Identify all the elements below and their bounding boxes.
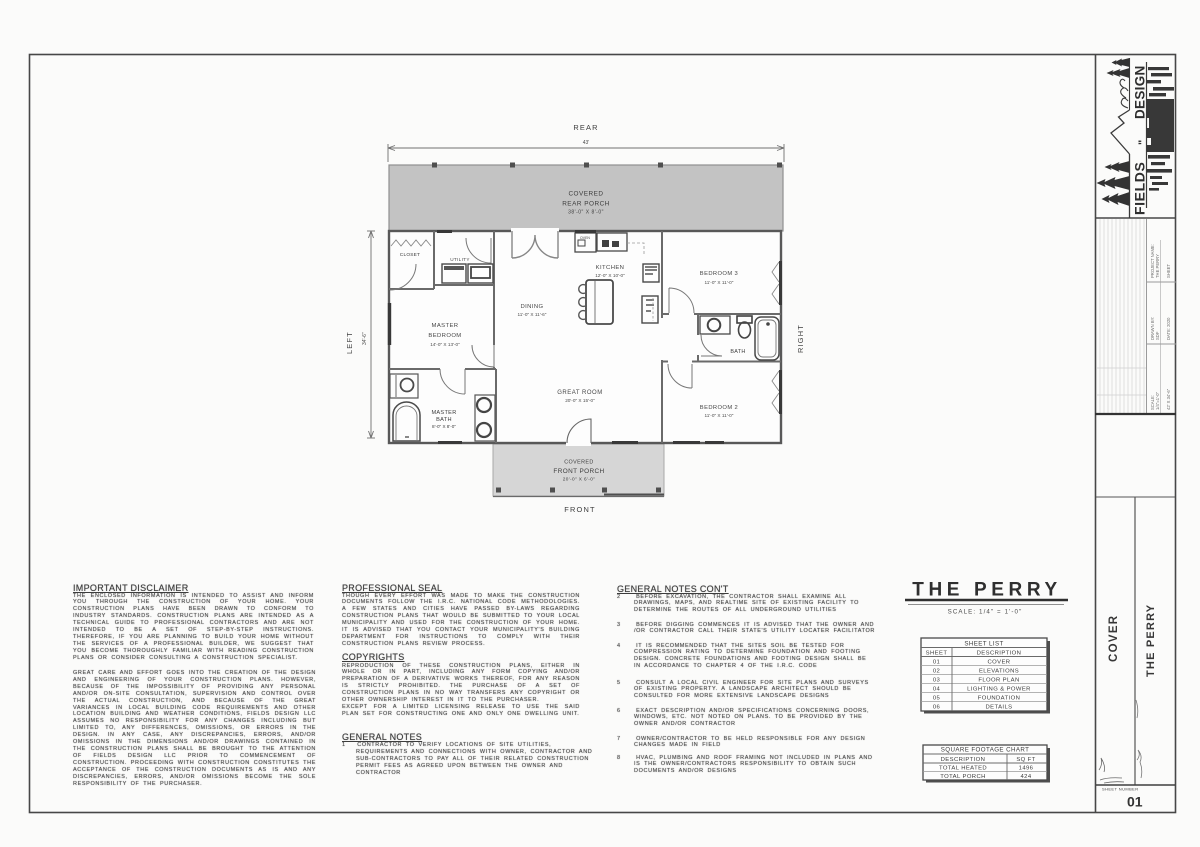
svg-text:BEDROOM 3: BEDROOM 3 (700, 271, 738, 277)
svg-text:02: 02 (933, 669, 940, 675)
svg-text:06: 06 (933, 705, 941, 711)
svg-text:SHEET: SHEET (1166, 264, 1171, 278)
svg-text:05: 05 (933, 696, 941, 702)
svg-text:REAR PORCH: REAR PORCH (562, 201, 610, 208)
svg-text:OVEN: OVEN (580, 236, 590, 240)
svg-text:UTILITY: UTILITY (450, 257, 470, 262)
svg-text:FOUNDATION: FOUNDATION (978, 696, 1021, 702)
svg-text:42' X 34'-6": 42' X 34'-6" (1166, 388, 1171, 410)
svg-text:FLOOR PLAN: FLOOR PLAN (978, 678, 1019, 684)
svg-text:1/4"=1'-0": 1/4"=1'-0" (1155, 391, 1160, 410)
svg-text:424: 424 (1020, 774, 1031, 780)
svg-text:MASTER: MASTER (432, 323, 459, 329)
svg-text:KITCHEN: KITCHEN (596, 265, 625, 271)
svg-text:SQ FT: SQ FT (1016, 757, 1035, 763)
svg-text:DESIGN: DESIGN (1133, 65, 1148, 119)
svg-text:SDF: SDF (1155, 331, 1160, 340)
svg-text:12'-0" X 10'-0": 12'-0" X 10'-0" (595, 273, 625, 278)
svg-text:TOTAL HEATED: TOTAL HEATED (939, 766, 987, 772)
svg-text:SHEET NUMBER: SHEET NUMBER (1102, 787, 1139, 792)
svg-text:BATH: BATH (730, 349, 745, 355)
svg-text:43': 43' (583, 140, 590, 146)
svg-text:01: 01 (933, 660, 940, 666)
svg-text:RIGHT: RIGHT (796, 324, 805, 353)
svg-text:COVERED: COVERED (564, 460, 593, 466)
svg-text:1496: 1496 (1019, 766, 1034, 772)
svg-text:11'-0" X 11'-0": 11'-0" X 11'-0" (705, 413, 734, 418)
svg-text:THE PERRY: THE PERRY (1155, 254, 1160, 278)
svg-text:DATE: 2020: DATE: 2020 (1166, 317, 1171, 340)
svg-text:THE PERRY: THE PERRY (912, 580, 1061, 601)
svg-text:SHEET LIST: SHEET LIST (964, 641, 1003, 648)
svg-text:DETAILS: DETAILS (986, 705, 1013, 711)
svg-text:DINING: DINING (520, 304, 543, 310)
svg-text:FIELDS: FIELDS (1132, 162, 1148, 215)
svg-text:20'-0" X 6'-0": 20'-0" X 6'-0" (563, 477, 596, 482)
svg-text:BATH: BATH (436, 417, 452, 423)
svg-text:ELEVATIONS: ELEVATIONS (979, 669, 1019, 675)
svg-text:SCALE: 1/4" = 1'-0": SCALE: 1/4" = 1'-0" (948, 609, 1023, 616)
svg-text:11'-0" X 11'-6": 11'-0" X 11'-6" (518, 312, 547, 317)
svg-text:BEDROOM: BEDROOM (428, 333, 461, 339)
svg-text:COVER: COVER (1108, 615, 1120, 662)
svg-text:LEFT: LEFT (345, 331, 354, 354)
svg-text:8'-0" X 8'-0": 8'-0" X 8'-0" (432, 424, 456, 429)
svg-text:14'-0" X 13'-0": 14'-0" X 13'-0" (430, 342, 460, 347)
svg-text:CLOSET: CLOSET (400, 252, 420, 258)
svg-text:COVERED: COVERED (568, 191, 603, 198)
svg-text:COVER: COVER (988, 660, 1011, 666)
svg-text:TOTAL PORCH: TOTAL PORCH (940, 774, 986, 780)
svg-text:": " (1137, 140, 1149, 145)
svg-text:11'-0" X 11'-0": 11'-0" X 11'-0" (705, 280, 734, 285)
svg-text:20'-0" X 15'-0": 20'-0" X 15'-0" (565, 398, 595, 403)
svg-text:03: 03 (933, 678, 941, 684)
svg-text:04: 04 (933, 687, 941, 693)
svg-text:LIGHTING & POWER: LIGHTING & POWER (967, 687, 1031, 693)
svg-text:34'-6": 34'-6" (362, 332, 368, 345)
svg-text:THE PERRY: THE PERRY (1145, 604, 1157, 677)
svg-text:38'-0" X 8'-0": 38'-0" X 8'-0" (568, 210, 604, 216)
svg-text:SQUARE FOOTAGE CHART: SQUARE FOOTAGE CHART (941, 747, 1030, 754)
svg-text:SHEET: SHEET (926, 651, 948, 657)
svg-text:FRONT: FRONT (564, 505, 595, 514)
svg-text:BEDROOM 2: BEDROOM 2 (700, 405, 738, 411)
svg-text:01: 01 (1127, 794, 1143, 810)
svg-text:FRONT PORCH: FRONT PORCH (553, 468, 604, 475)
svg-text:REAR: REAR (573, 123, 598, 132)
svg-text:GREAT ROOM: GREAT ROOM (557, 390, 602, 396)
svg-text:DESCRIPTION: DESCRIPTION (977, 651, 1022, 657)
svg-text:MASTER: MASTER (431, 410, 456, 416)
svg-text:DESCRIPTION: DESCRIPTION (941, 757, 986, 763)
